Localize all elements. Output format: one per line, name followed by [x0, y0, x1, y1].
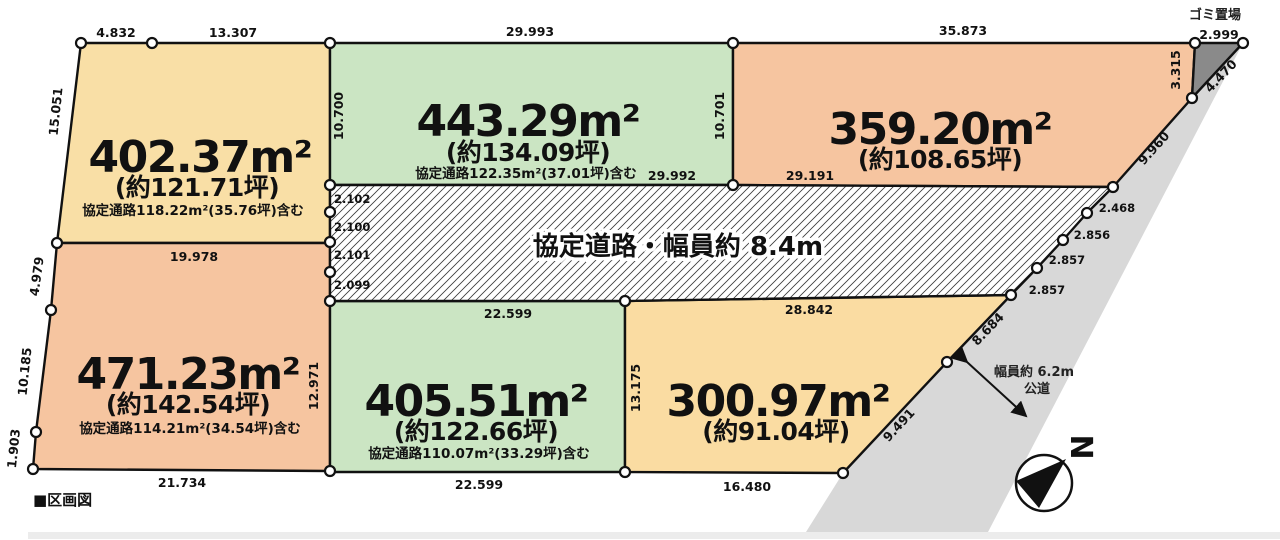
vertex-dot — [1006, 290, 1016, 300]
parcel-tsubo: (約142.54坪) — [106, 390, 270, 419]
vertex-dot — [325, 296, 335, 306]
dim-road-w4: 2.099 — [334, 278, 370, 292]
dim-p2-top: 29.993 — [506, 24, 554, 39]
dim-p2-bottom: 29.992 — [648, 168, 696, 183]
garbage-area-label: ゴミ置場 — [1189, 7, 1241, 23]
vertex-dot — [1238, 38, 1248, 48]
dim-road-w2: 2.100 — [334, 220, 370, 234]
dim-p4-left-b: 10.185 — [15, 347, 35, 397]
dim-p2-right: 10.701 — [712, 92, 727, 140]
dim-garbage-left: 3.315 — [1168, 50, 1183, 90]
dim-2468: 2.468 — [1099, 201, 1135, 215]
dim-p4-left-a: 4.979 — [26, 256, 46, 297]
vertex-dot — [1187, 93, 1197, 103]
dim-road-w1: 2.102 — [334, 192, 370, 206]
dim-p5-top: 22.599 — [484, 306, 532, 321]
vertex-dot — [1108, 182, 1118, 192]
dim-p6-top: 28.842 — [785, 302, 833, 317]
vertex-dot — [46, 305, 56, 315]
parcel-note: 協定通路122.35m²(37.01坪)含む — [415, 165, 637, 182]
parcel-tsubo: (約134.09坪) — [446, 138, 610, 167]
vertex-dot — [325, 267, 335, 277]
vertex-dot — [620, 296, 630, 306]
dim-2857-b: 2.857 — [1029, 283, 1065, 297]
public-road-label-line2: 公道 — [1024, 381, 1050, 397]
dim-p4-left-c: 1.903 — [4, 428, 23, 469]
vertex-dot — [838, 468, 848, 478]
parcel-note: 協定通路114.21m²(34.54坪)含む — [79, 420, 301, 437]
parcel-tsubo: (約122.66坪) — [394, 417, 558, 446]
agreement-road-label: 協定道路・幅員約 8.4m — [533, 231, 823, 262]
dim-p4-top: 19.978 — [170, 249, 218, 264]
dim-p6-bottom: 16.480 — [723, 479, 772, 494]
dim-p4-right: 12.971 — [306, 362, 321, 410]
legend-label: ■区画図 — [33, 491, 92, 509]
dim-garbage-top: 2.999 — [1199, 27, 1239, 42]
parcel-note: 協定通路118.22m²(35.76坪)含む — [82, 202, 304, 219]
vertex-dot — [728, 38, 738, 48]
vertex-dot — [1082, 208, 1092, 218]
vertex-dot — [325, 38, 335, 48]
vertex-dot — [147, 38, 157, 48]
dim-p3-top: 35.873 — [939, 23, 987, 38]
compass-north-label: N — [1063, 434, 1098, 459]
vertex-dot — [942, 357, 952, 367]
parcel-bottom-middle-labels: 405.51m² (約122.66坪) 協定通路110.07m²(33.29坪)… — [365, 376, 590, 462]
parcel-bottom-left-labels: 471.23m² (約142.54坪) 協定通路114.21m²(34.54坪)… — [77, 349, 301, 437]
land-plot-map: 402.37m² (約121.71坪) 協定通路118.22m²(35.76坪)… — [0, 0, 1280, 540]
vertex-dot — [620, 467, 630, 477]
vertex-dot — [325, 466, 335, 476]
vertex-dot — [1032, 263, 1042, 273]
dim-road-w3: 2.101 — [334, 248, 370, 262]
parcel-top-left-labels: 402.37m² (約121.71坪) 協定通路118.22m²(35.76坪)… — [82, 132, 311, 219]
public-road-label-line1: 幅員約 6.2m — [994, 364, 1074, 380]
vertex-dot — [325, 180, 335, 190]
dim-p1-left: 15.051 — [46, 87, 66, 137]
vertex-dot — [52, 238, 62, 248]
vertex-dot — [1190, 38, 1200, 48]
dim-p4-bottom: 21.734 — [158, 475, 207, 490]
dim-p1-top-a: 4.832 — [96, 25, 136, 40]
bottom-strip — [28, 532, 1280, 539]
parcel-tsubo: (約121.71坪) — [115, 173, 279, 202]
parcel-tsubo: (約91.04坪) — [702, 417, 849, 446]
dim-p1-top-b: 13.307 — [209, 25, 257, 40]
vertex-dot — [1058, 235, 1068, 245]
dim-p3-bottom: 29.191 — [786, 168, 834, 183]
parcel-note: 協定通路110.07m²(33.29坪)含む — [368, 445, 590, 462]
dim-p5-bottom: 22.599 — [455, 477, 503, 492]
dim-2856: 2.856 — [1074, 228, 1110, 242]
vertex-dot — [31, 427, 41, 437]
vertex-dot — [76, 38, 86, 48]
vertex-dot — [325, 207, 335, 217]
plot-map-canvas: 402.37m² (約121.71坪) 協定通路118.22m²(35.76坪)… — [0, 0, 1280, 540]
dim-p5-right: 13.175 — [628, 364, 643, 412]
parcel-top-right-labels: 359.20m² (約108.65坪) — [829, 104, 1052, 174]
vertex-dot — [325, 237, 335, 247]
dim-p2-left: 10.700 — [331, 92, 346, 141]
parcel-top-middle-labels: 443.29m² (約134.09坪) 協定通路122.35m²(37.01坪)… — [415, 96, 639, 182]
vertex-dot — [728, 180, 738, 190]
dim-2857-a: 2.857 — [1049, 253, 1085, 267]
parcel-tsubo: (約108.65坪) — [858, 145, 1022, 174]
vertex-dot — [28, 464, 38, 474]
